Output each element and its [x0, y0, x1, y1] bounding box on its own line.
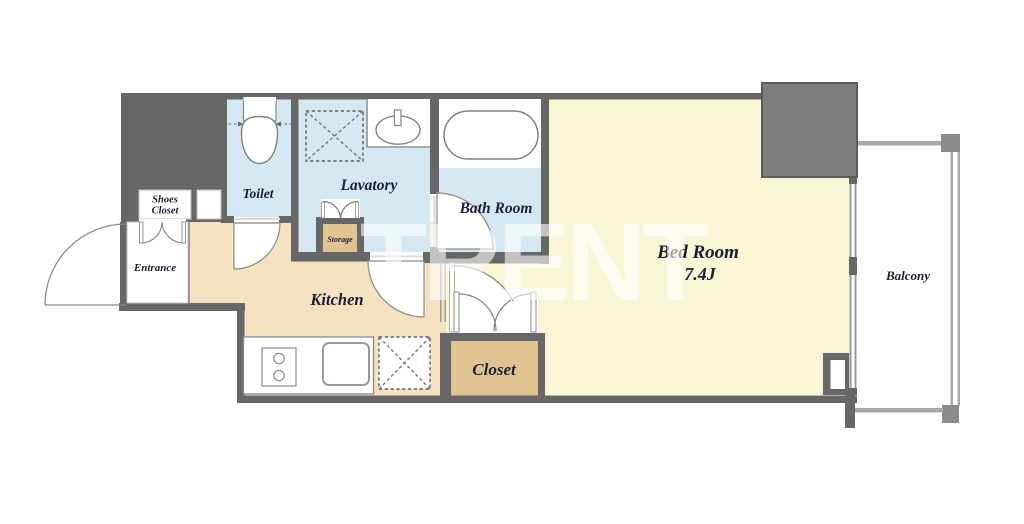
svg-text:Closet: Closet: [472, 360, 517, 379]
svg-text:Storage: Storage: [327, 235, 353, 244]
svg-text:Lavatory: Lavatory: [340, 177, 398, 194]
svg-text:Kitchen: Kitchen: [309, 290, 363, 309]
svg-text:Shoes: Shoes: [152, 195, 178, 206]
svg-text:Closet: Closet: [152, 206, 180, 217]
svg-text:Toilet: Toilet: [242, 186, 274, 201]
svg-text:Entrance: Entrance: [133, 262, 176, 274]
svg-text:Balcony: Balcony: [885, 268, 930, 283]
svg-text:TRENT: TRENT: [360, 201, 708, 324]
